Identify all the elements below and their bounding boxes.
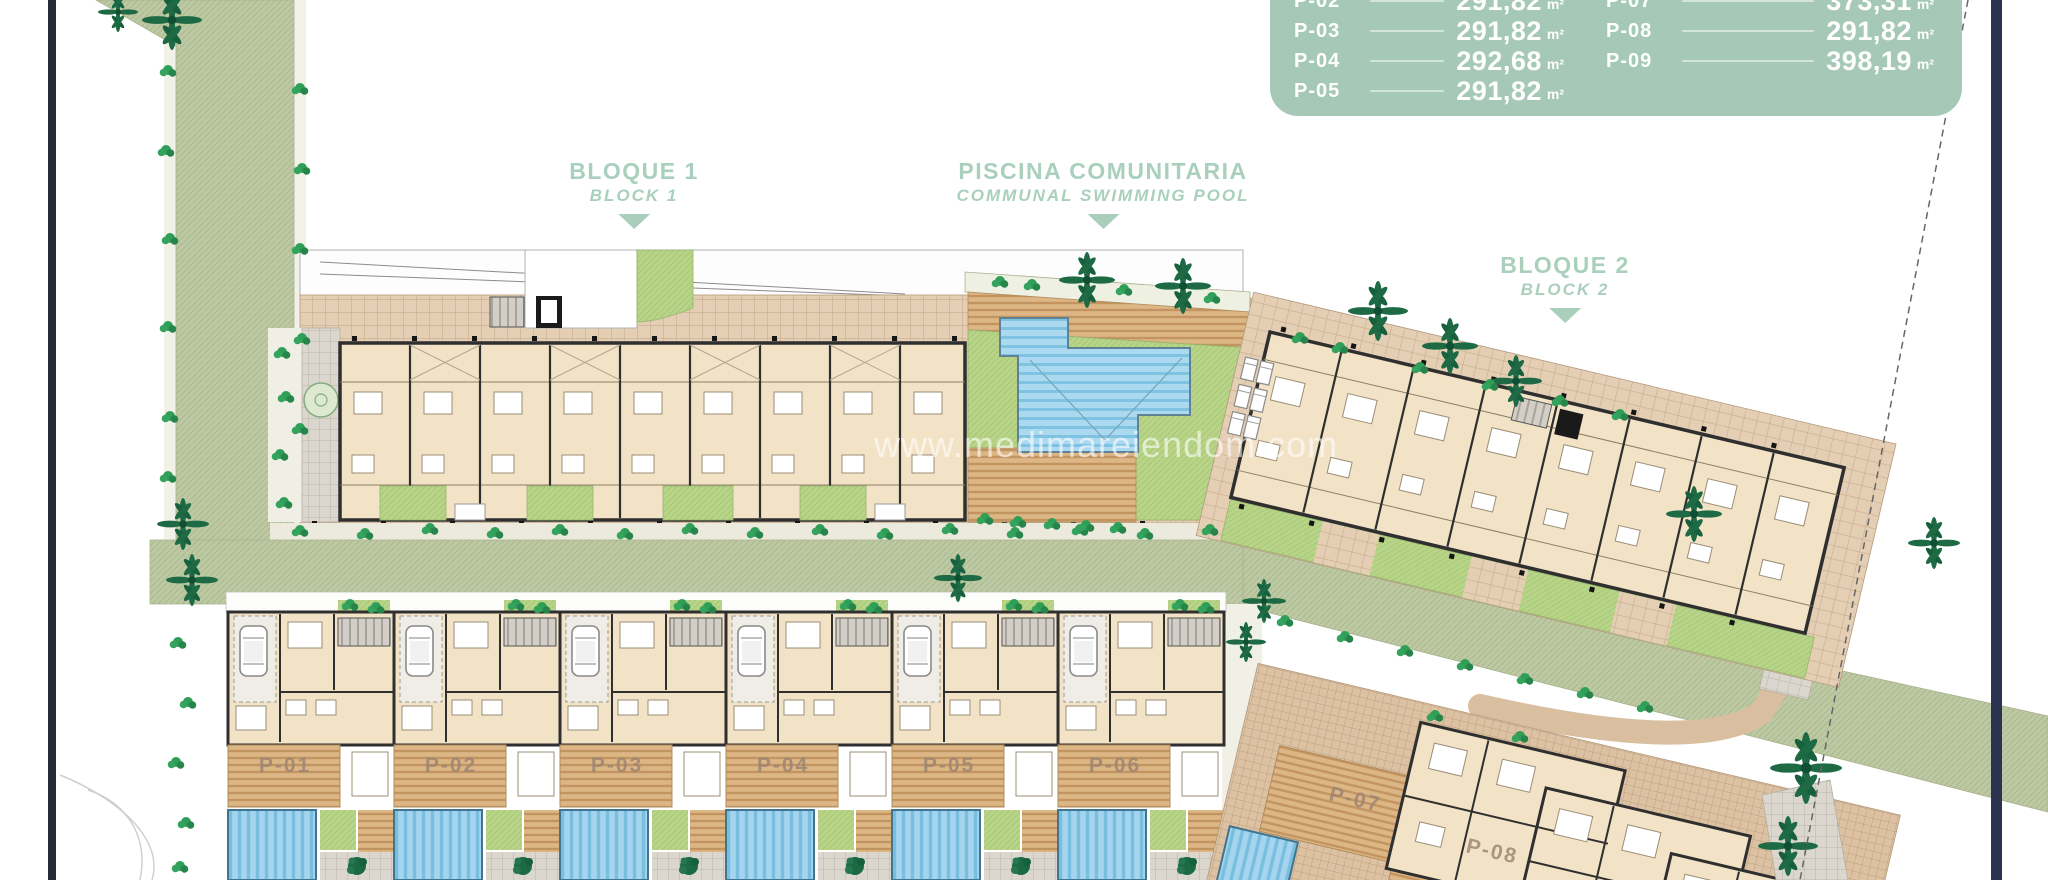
area-unit: m² — [1917, 0, 1934, 12]
plot-area: 291,82 — [1826, 16, 1912, 47]
leader-line — [1370, 60, 1444, 62]
bush-icon — [168, 757, 185, 769]
car-icon — [904, 626, 931, 676]
bush-icon — [180, 697, 197, 709]
block1-subtitle: BLOCK 1 — [569, 186, 699, 206]
plot-area: 398,19 — [1826, 46, 1912, 77]
leader-line — [1682, 30, 1814, 32]
townhouse-row — [228, 599, 1224, 880]
pool-label: PISCINA COMUNITARIA COMMUNAL SWIMMING PO… — [957, 158, 1250, 229]
plot-id: P-07 — [1606, 0, 1670, 13]
legend-row: P-05 291,82m² — [1294, 76, 1564, 106]
plot-id: P-09 — [1606, 50, 1670, 73]
unit-label-p05: P-05 — [923, 754, 975, 778]
area-unit: m² — [1547, 86, 1564, 102]
area-unit: m² — [1547, 56, 1564, 72]
legend-panel: P-02 291,82m² P-03 291,82m² P-04 292,68m… — [1270, 0, 1962, 116]
pool-subtitle: COMMUNAL SWIMMING POOL — [957, 186, 1250, 206]
legend-left-column: P-02 291,82m² P-03 291,82m² P-04 292,68m… — [1294, 0, 1564, 116]
townhouse-unit — [726, 599, 892, 880]
unit-label-p04: P-04 — [757, 754, 809, 778]
triangle-down-icon — [1087, 214, 1119, 229]
watermark-text: www.medimareiendom.com — [874, 424, 1338, 466]
unit-label-p03: P-03 — [591, 754, 643, 778]
townhouse-unit — [394, 599, 560, 880]
area-unit: m² — [1547, 26, 1564, 42]
plot-area: 373,31 — [1826, 0, 1912, 17]
plot-id: P-05 — [1294, 80, 1358, 103]
leader-line — [1682, 60, 1814, 62]
townhouse-unit — [1058, 599, 1224, 880]
block2-subtitle: BLOCK 2 — [1500, 280, 1630, 300]
bush-icon — [178, 817, 195, 829]
palm-icon — [1908, 517, 1960, 569]
plot-id: P-03 — [1294, 20, 1358, 43]
unit-label-p01: P-01 — [259, 754, 311, 778]
plot-area: 291,82 — [1456, 16, 1542, 47]
bush-icon — [170, 637, 187, 649]
contour-line — [88, 790, 142, 880]
legend-row: P-02 291,82m² — [1294, 0, 1564, 16]
legend-right-column: P-07 373,31m² P-08 291,82m² P-09 398,19m… — [1606, 0, 1934, 116]
area-unit: m² — [1917, 26, 1934, 42]
plot-area: 291,82 — [1456, 76, 1542, 107]
car-icon — [738, 626, 765, 676]
unit-label-p02: P-02 — [425, 754, 477, 778]
triangle-down-icon — [618, 214, 650, 229]
car-icon — [572, 626, 599, 676]
legend-row: P-09 398,19m² — [1606, 46, 1934, 76]
plot-id: P-04 — [1294, 50, 1358, 73]
townhouse-unit — [892, 599, 1058, 880]
left-border-bar — [48, 0, 56, 880]
car-icon — [406, 626, 433, 676]
legend-row: P-08 291,82m² — [1606, 16, 1934, 46]
plot-id: P-08 — [1606, 20, 1670, 43]
area-unit: m² — [1547, 0, 1564, 12]
leader-line — [1682, 0, 1814, 2]
plot-area: 291,82 — [1456, 0, 1542, 17]
block2-title: BLOQUE 2 — [1500, 252, 1630, 279]
block2-label: BLOQUE 2 BLOCK 2 — [1500, 252, 1630, 323]
legend-row: P-04 292,68m² — [1294, 46, 1564, 76]
townhouse-unit — [228, 599, 394, 880]
area-unit: m² — [1917, 56, 1934, 72]
legend-row: P-03 291,82m² — [1294, 16, 1564, 46]
townhouse-unit — [560, 599, 726, 880]
leader-line — [1370, 90, 1444, 92]
leader-line — [1370, 30, 1444, 32]
legend-row: P-07 373,31m² — [1606, 0, 1934, 16]
triangle-down-icon — [1549, 308, 1581, 323]
car-icon — [1070, 626, 1097, 676]
car-icon — [240, 626, 267, 676]
bush-icon — [172, 861, 189, 873]
site-plan-canvas: P-02 291,82m² P-03 291,82m² P-04 292,68m… — [0, 0, 2048, 880]
contour-line — [60, 775, 154, 880]
leader-line — [1370, 0, 1444, 2]
block1-label: BLOQUE 1 BLOCK 1 — [569, 158, 699, 229]
pool-title: PISCINA COMUNITARIA — [957, 158, 1250, 185]
right-border-bar — [1991, 0, 2002, 880]
plot-area: 292,68 — [1456, 46, 1542, 77]
block1-title: BLOQUE 1 — [569, 158, 699, 185]
unit-label-p06: P-06 — [1089, 754, 1141, 778]
plot-id: P-02 — [1294, 0, 1358, 13]
